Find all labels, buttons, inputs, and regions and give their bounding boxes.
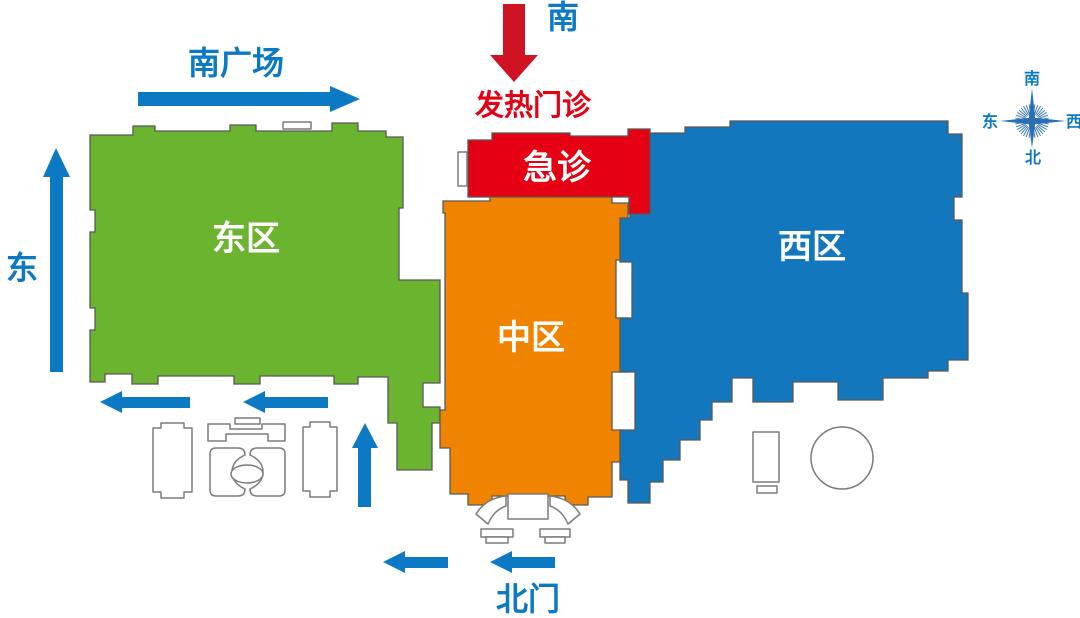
compass-south-label: 南 bbox=[1024, 69, 1040, 88]
inner-arrow-up bbox=[352, 423, 378, 507]
building-outline bbox=[153, 423, 192, 498]
compass-west-label: 西 bbox=[1066, 113, 1080, 131]
south-plaza-label: 南广场 bbox=[188, 45, 284, 81]
building-outline bbox=[303, 422, 337, 497]
building-outline bbox=[208, 424, 285, 441]
east-zone-shape bbox=[90, 123, 440, 470]
north-gate-arrow-left-1 bbox=[383, 551, 448, 573]
exit-arrow-left-1 bbox=[100, 391, 190, 413]
east-zone-label: 东区 bbox=[212, 219, 280, 258]
gate-awning bbox=[486, 537, 508, 543]
east-label: 东 bbox=[6, 250, 38, 286]
fountain-ellipse bbox=[231, 465, 263, 483]
north-gate-arrow-left-2 bbox=[490, 551, 555, 573]
gate-canopy-center bbox=[508, 494, 548, 519]
west-zone-label: 西区 bbox=[778, 229, 846, 266]
emergency-label: 急诊 bbox=[523, 149, 592, 187]
building-outline bbox=[753, 432, 779, 482]
building-outline bbox=[458, 152, 467, 186]
south-plaza-arrow-right bbox=[138, 86, 360, 112]
gate-awning bbox=[545, 537, 565, 543]
east-direction-arrow-up bbox=[43, 148, 70, 372]
gate-awning bbox=[540, 529, 570, 537]
building-outline bbox=[235, 418, 260, 424]
compass-rose: 南 北 东 西 bbox=[982, 69, 1080, 167]
west-zone-shape bbox=[620, 121, 968, 503]
exit-arrow-left-2 bbox=[243, 391, 328, 413]
fever-clinic-label: 发热门诊 bbox=[474, 89, 592, 122]
compass-east-label: 东 bbox=[982, 112, 998, 131]
hospital-campus-map: 南 北 东 西 南 发热门诊 急诊 东区 中区 西区 南广场 东 北门 bbox=[0, 0, 1080, 618]
north-gate-label: 北门 bbox=[496, 581, 560, 617]
south-label: 南 bbox=[547, 0, 579, 35]
middle-zone-label: 中区 bbox=[497, 319, 565, 357]
compass-north-label: 北 bbox=[1025, 149, 1041, 167]
building-outline bbox=[283, 122, 311, 129]
gate-awning bbox=[481, 529, 513, 537]
south-entry-arrow-down bbox=[490, 4, 538, 82]
round-building-outline bbox=[811, 427, 873, 489]
building-outline bbox=[757, 486, 777, 493]
compass-ns-needle bbox=[1029, 88, 1036, 148]
